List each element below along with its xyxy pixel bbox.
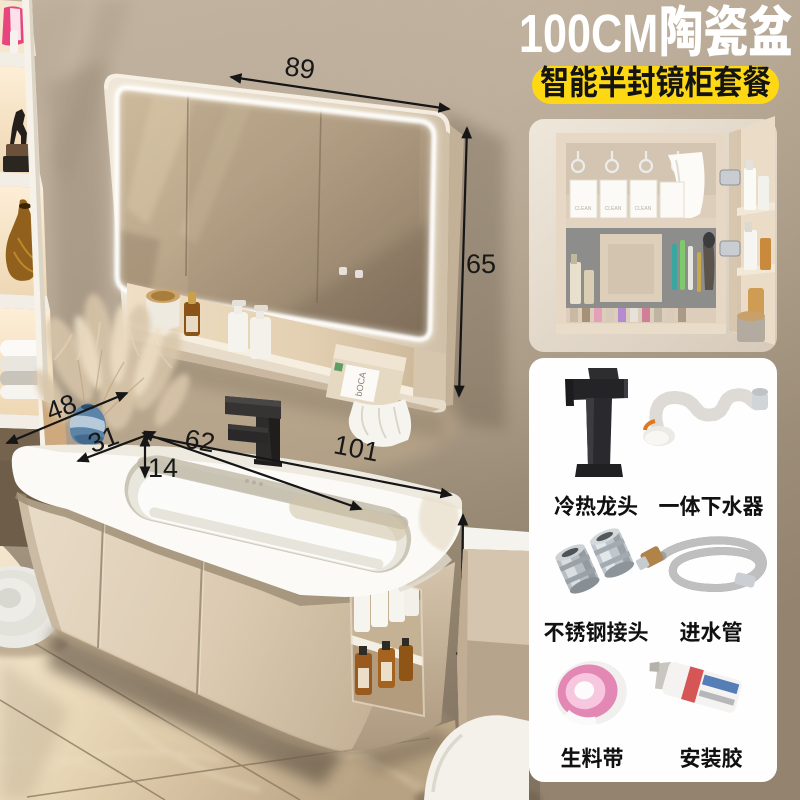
- svg-text:89: 89: [283, 51, 317, 85]
- svg-text:100CM: 100CM: [519, 5, 658, 65]
- svg-text:CLEAN: CLEAN: [575, 206, 592, 212]
- svg-text:65: 65: [466, 249, 496, 279]
- svg-text:14: 14: [148, 453, 178, 483]
- svg-text:CLEAN: CLEAN: [605, 206, 622, 212]
- svg-text:CLEAN: CLEAN: [635, 206, 652, 212]
- svg-text:62: 62: [182, 424, 217, 459]
